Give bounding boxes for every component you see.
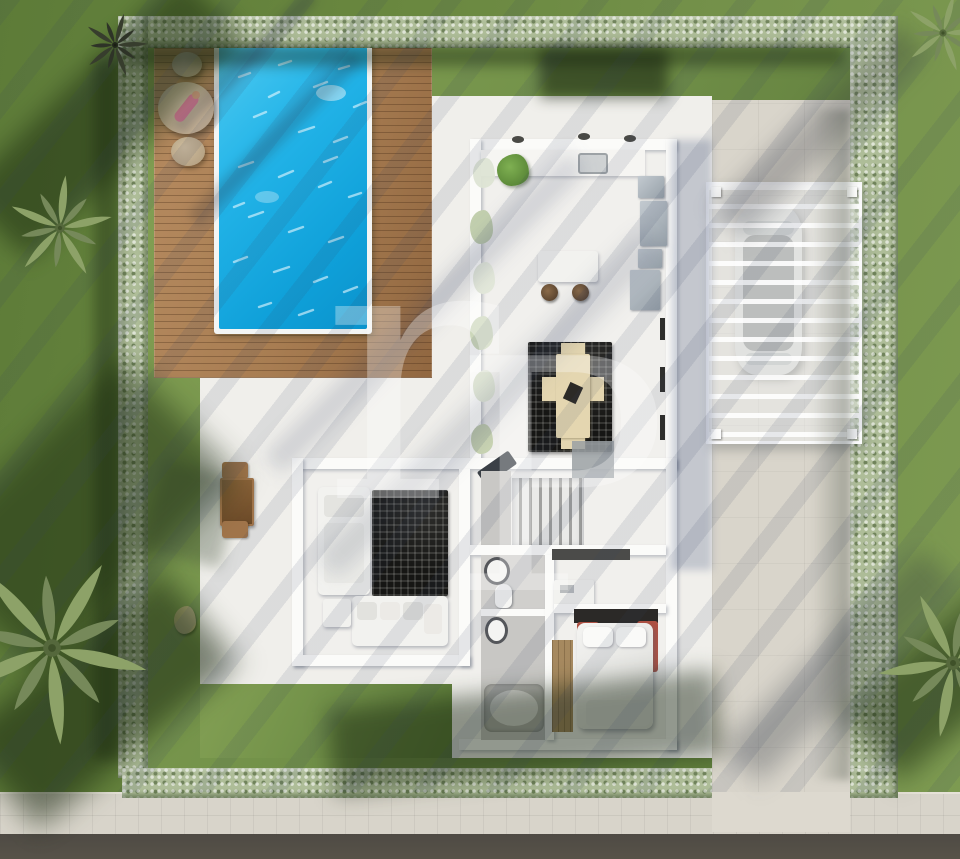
cushion [403,602,423,620]
pergola-post [847,187,857,197]
kitchen-island [538,251,598,282]
bar-stool [572,284,589,301]
wall-pot [578,133,590,140]
bathtub [484,684,544,732]
outdoor-chair [222,462,248,479]
pergola-post [711,429,721,439]
wall-pot [512,136,524,143]
outdoor-table [220,478,254,526]
wardrobe [552,549,630,560]
appliance [638,176,664,198]
wall-vent [660,415,665,440]
wall [459,739,677,750]
bed-pillow [616,627,646,647]
shrub [473,370,495,402]
pool-sparkle [219,47,367,329]
wall [666,458,677,750]
cushion [324,495,364,517]
desk-item [560,585,574,593]
cushion [357,602,377,620]
living-rug [372,490,448,596]
pergola-carport [706,182,862,444]
hedge-bottom-right [843,768,898,798]
person-head [192,91,200,99]
road [0,831,960,859]
swimming-pool [219,47,367,329]
dining-chair [589,377,604,401]
outdoor-chair [222,521,248,538]
sofa [352,596,448,646]
driveway-apron [712,792,850,832]
sofa-chaise [318,487,370,595]
wall [470,139,676,150]
shrub [470,316,493,350]
bar-stool [541,284,558,301]
fridge [640,201,667,246]
stairs [512,478,584,548]
dining-chair [542,377,557,401]
villa-aerial-render: r P [0,0,960,859]
wall-vent [660,318,665,340]
shrub [471,424,493,454]
cabinet [630,270,660,310]
cushion [424,604,442,634]
cushion [380,602,400,620]
wall [666,139,677,469]
pouf [171,137,205,166]
potted-plant [497,154,529,186]
toilet [495,584,512,608]
wall-vent [660,367,665,392]
wall [292,458,303,666]
kitchen-sink [578,153,608,174]
palm-tree [0,158,130,297]
shrub [473,158,495,188]
pergola-post [847,429,857,439]
hall-floor [481,471,511,549]
shrub [473,262,495,294]
wall [470,139,481,469]
sun-lounger [158,82,214,134]
cushion [324,523,364,583]
washbasin [484,557,510,585]
pouf [172,52,202,77]
grass-tuft [898,0,960,78]
hedge-top [122,16,898,48]
shrub [470,210,493,244]
stair-void [572,441,614,478]
side-table [323,599,351,627]
hedge-bottom-left [122,768,720,798]
pergola-post [711,187,721,197]
wall [292,655,470,666]
appliance [638,249,662,268]
garden-rock [174,606,196,634]
wall-pot [624,135,636,142]
dark-bush [78,8,152,82]
bedroom-wood-floor [552,640,573,732]
bathtub-basin [490,690,538,726]
lawn-notch [200,684,452,758]
pool-rim [214,42,372,334]
bed-blanket [586,700,650,726]
bed-pillow [583,627,613,647]
wall [459,469,470,666]
washbasin [485,617,508,644]
